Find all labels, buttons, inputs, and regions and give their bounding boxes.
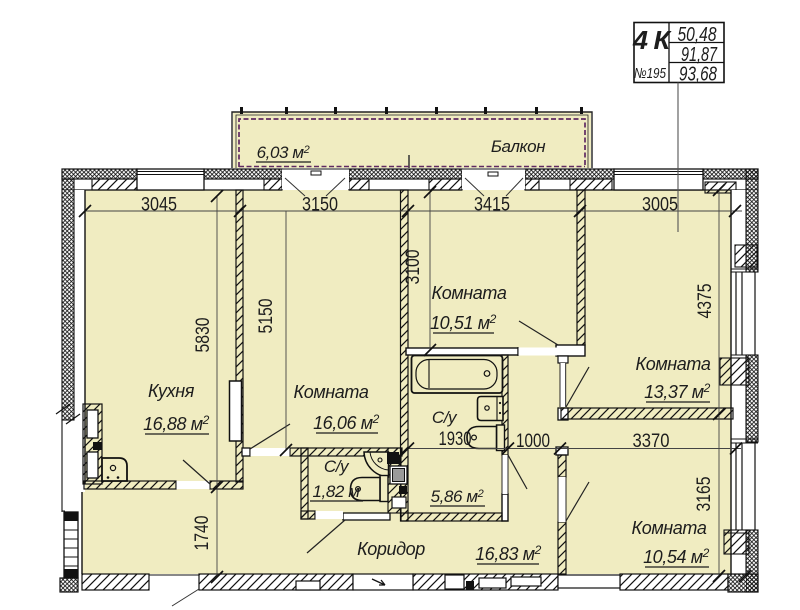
svg-text:93,68: 93,68 <box>679 64 717 86</box>
svg-text:6,03 м2: 6,03 м2 <box>257 143 310 162</box>
svg-text:16,88 м2: 16,88 м2 <box>143 413 210 434</box>
svg-text:5830: 5830 <box>193 318 214 353</box>
svg-text:3165: 3165 <box>694 477 715 512</box>
svg-text:3370: 3370 <box>633 431 670 452</box>
svg-text:10,51 м2: 10,51 м2 <box>430 312 497 333</box>
svg-text:5150: 5150 <box>256 299 277 334</box>
svg-text:3100: 3100 <box>403 250 424 285</box>
svg-text:Кухня: Кухня <box>148 381 195 401</box>
svg-text:1930: 1930 <box>439 429 472 450</box>
svg-text:№195: №195 <box>634 66 667 82</box>
svg-text:4375: 4375 <box>695 284 716 319</box>
svg-text:3415: 3415 <box>474 195 510 216</box>
svg-text:1000: 1000 <box>516 431 550 452</box>
svg-text:С/у: С/у <box>432 408 458 427</box>
svg-text:4 К: 4 К <box>632 25 672 55</box>
svg-text:10,54 м2: 10,54 м2 <box>643 546 710 567</box>
svg-text:3005: 3005 <box>642 195 678 216</box>
svg-text:3045: 3045 <box>141 195 177 216</box>
svg-text:Комната: Комната <box>632 518 707 538</box>
svg-text:50,48: 50,48 <box>678 24 717 46</box>
svg-text:С/у: С/у <box>324 457 350 476</box>
svg-text:13,37 м2: 13,37 м2 <box>644 381 711 402</box>
svg-text:16,83 м2: 16,83 м2 <box>475 543 542 564</box>
svg-text:Комната: Комната <box>636 354 711 374</box>
svg-text:5,86 м2: 5,86 м2 <box>431 487 484 506</box>
svg-text:1,82 м: 1,82 м <box>312 482 360 501</box>
svg-text:Комната: Комната <box>294 382 369 402</box>
svg-text:Балкон: Балкон <box>491 137 546 156</box>
svg-text:Комната: Комната <box>432 283 507 303</box>
svg-text:Коридор: Коридор <box>357 539 425 559</box>
svg-text:3150: 3150 <box>302 195 338 216</box>
svg-text:1740: 1740 <box>192 516 213 551</box>
svg-text:16,06 м2: 16,06 м2 <box>313 412 380 433</box>
